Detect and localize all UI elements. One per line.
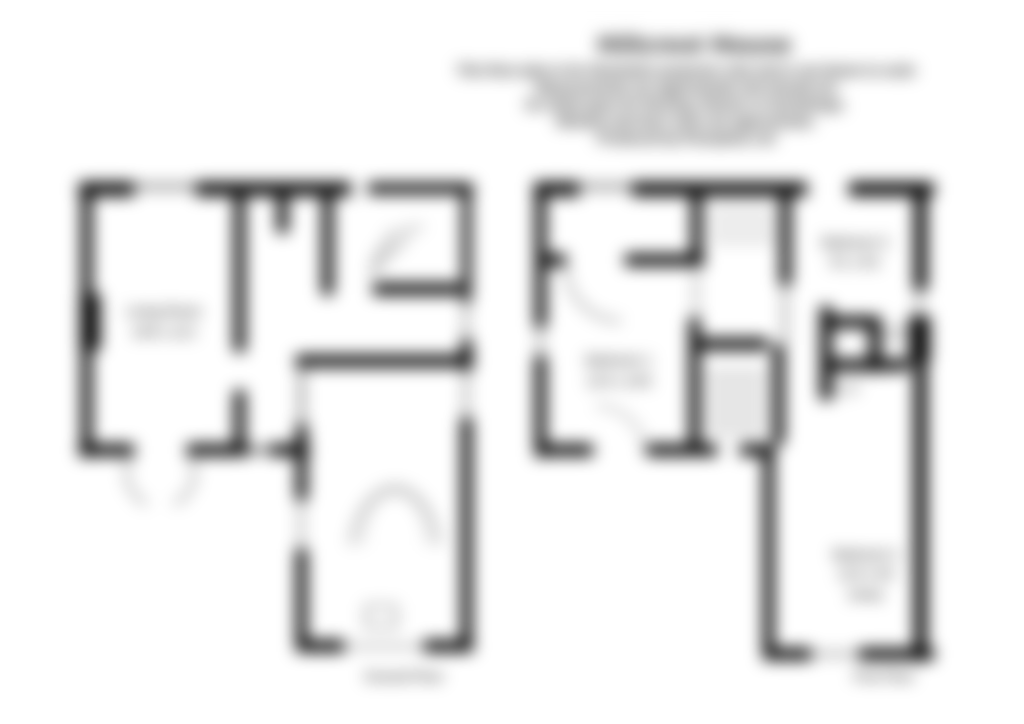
- svg-text:This floor plan is for illustr: This floor plan is for illustrative purp…: [457, 63, 915, 78]
- svg-text:9'1 x 8'2: 9'1 x 8'2: [830, 255, 879, 270]
- svg-text:(max): (max): [849, 587, 884, 602]
- svg-text:Living Room: Living Room: [126, 304, 201, 319]
- svg-text:First Floor: First Floor: [854, 669, 915, 684]
- svg-text:Produced by Floorplanz Ltd: Produced by Floorplanz Ltd: [597, 131, 774, 146]
- svg-text:Bedroom 1: Bedroom 1: [586, 353, 652, 368]
- svg-text:12'4 x 10'6: 12'4 x 10'6: [587, 374, 651, 389]
- svg-text:Bedroom 2: Bedroom 2: [833, 547, 899, 562]
- svg-text:15'8 x 11'2: 15'8 x 11'2: [132, 325, 195, 340]
- svg-text:be relied upon for flooring, f: be relied upon for flooring, fixtures or…: [526, 97, 846, 112]
- svg-text:11'9 x 9'0: 11'9 x 9'0: [838, 567, 894, 582]
- svg-text:Measurements are approximate a: Measurements are approximate and should …: [536, 80, 837, 95]
- svg-text:Ground Floor: Ground Floor: [364, 669, 444, 684]
- svg-text:Hillcrest House: Hillcrest House: [598, 31, 792, 59]
- svg-text:Bedroom 3: Bedroom 3: [822, 235, 888, 250]
- svg-text:Window and door sizes are appr: Window and door sizes are approximate.: [556, 114, 816, 129]
